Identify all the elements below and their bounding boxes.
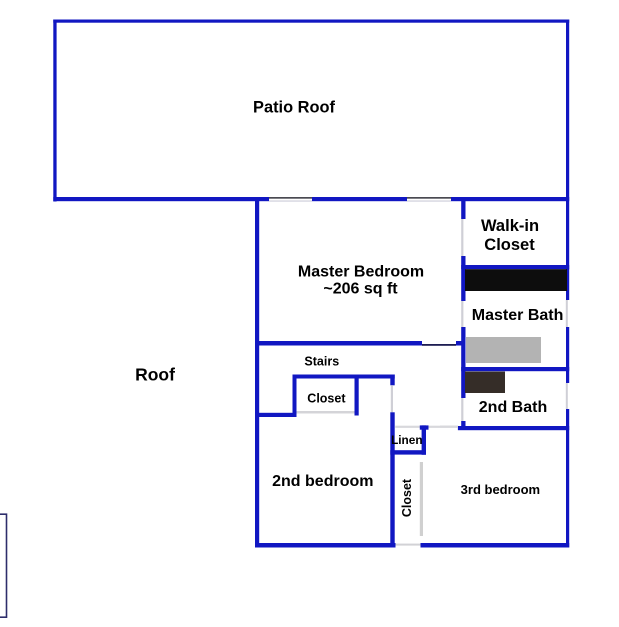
svg-text:Linen: Linen xyxy=(391,433,422,447)
svg-text:Master Bedroom: Master Bedroom xyxy=(298,264,424,281)
svg-text:Closet: Closet xyxy=(400,478,414,517)
svg-text:3rd bedroom: 3rd bedroom xyxy=(461,482,540,497)
svg-text:Patio Roof: Patio Roof xyxy=(253,98,335,116)
svg-text:Master Bath: Master Bath xyxy=(472,307,564,324)
svg-text:Closet: Closet xyxy=(484,236,535,254)
svg-text:Roof: Roof xyxy=(135,365,175,385)
svg-text:2nd Bath: 2nd Bath xyxy=(479,399,547,416)
svg-text:~206 sq ft: ~206 sq ft xyxy=(323,280,398,297)
svg-text:Walk-in: Walk-in xyxy=(481,217,539,235)
svg-text:Stairs: Stairs xyxy=(304,355,339,369)
svg-text:Closet: Closet xyxy=(307,392,346,406)
svg-text:2nd bedroom: 2nd bedroom xyxy=(272,473,373,490)
